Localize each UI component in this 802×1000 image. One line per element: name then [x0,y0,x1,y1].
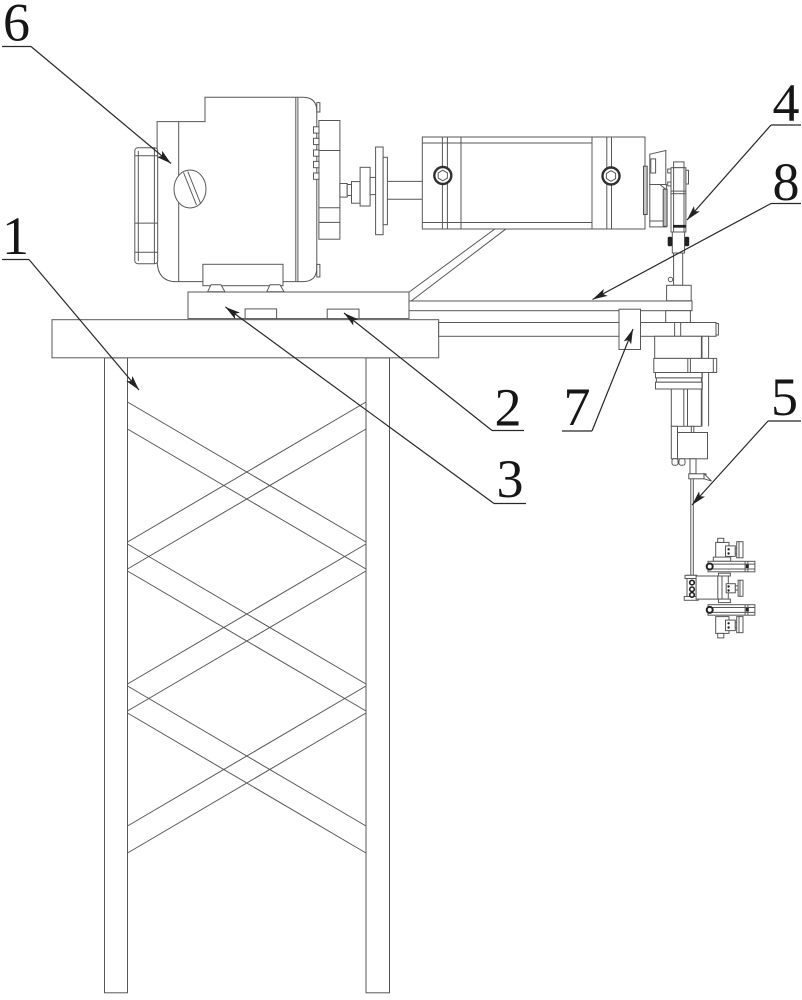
svg-text:1: 1 [2,206,29,266]
svg-text:6: 6 [3,0,30,53]
svg-text:7: 7 [564,377,591,437]
svg-text:5: 5 [771,367,798,427]
svg-text:4: 4 [773,73,800,133]
svg-text:3: 3 [497,449,524,509]
svg-text:2: 2 [495,378,522,438]
